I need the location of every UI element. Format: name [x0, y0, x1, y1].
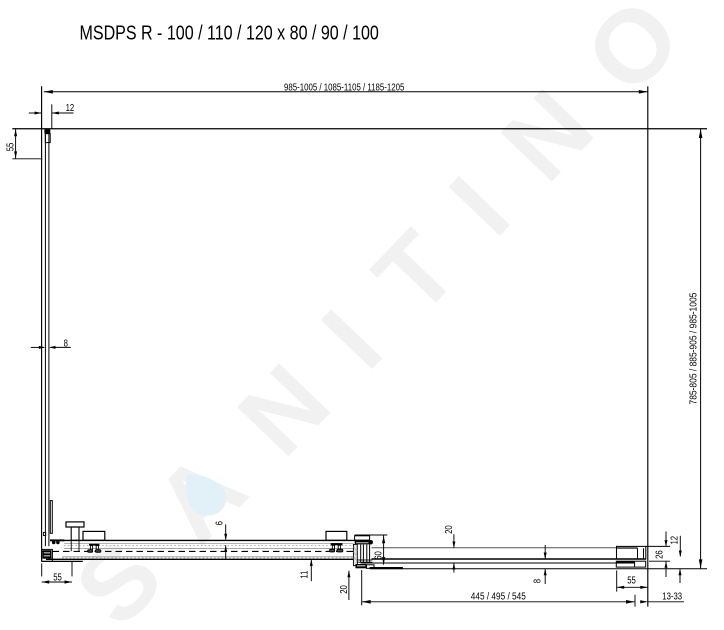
svg-text:445 / 495 / 545: 445 / 495 / 545 — [471, 591, 526, 602]
svg-text:26: 26 — [654, 550, 665, 559]
svg-text:6: 6 — [214, 521, 225, 525]
svg-text:11: 11 — [298, 570, 309, 578]
svg-text:8: 8 — [64, 337, 68, 348]
svg-text:55: 55 — [5, 143, 16, 152]
svg-text:8: 8 — [532, 579, 543, 583]
svg-text:20: 20 — [443, 525, 454, 534]
svg-text:20: 20 — [338, 585, 349, 594]
svg-text:985-1005 / 1085-1105 / 1185-12: 985-1005 / 1085-1105 / 1185-1205 — [284, 82, 404, 93]
svg-text:55: 55 — [53, 572, 62, 583]
svg-text:60: 60 — [373, 551, 384, 560]
svg-text:MSDPS R - 100 / 110 / 120 x 80: MSDPS R - 100 / 110 / 120 x 80 / 90 / 10… — [80, 21, 379, 44]
svg-text:12: 12 — [66, 102, 75, 113]
svg-text:13-33: 13-33 — [662, 591, 682, 602]
svg-text:785-805 / 885-905 / 985-1005: 785-805 / 885-905 / 985-1005 — [688, 293, 699, 405]
svg-text:SANITINO: SANITINO — [53, 0, 724, 630]
svg-text:55: 55 — [627, 575, 636, 586]
svg-text:12: 12 — [669, 536, 680, 545]
